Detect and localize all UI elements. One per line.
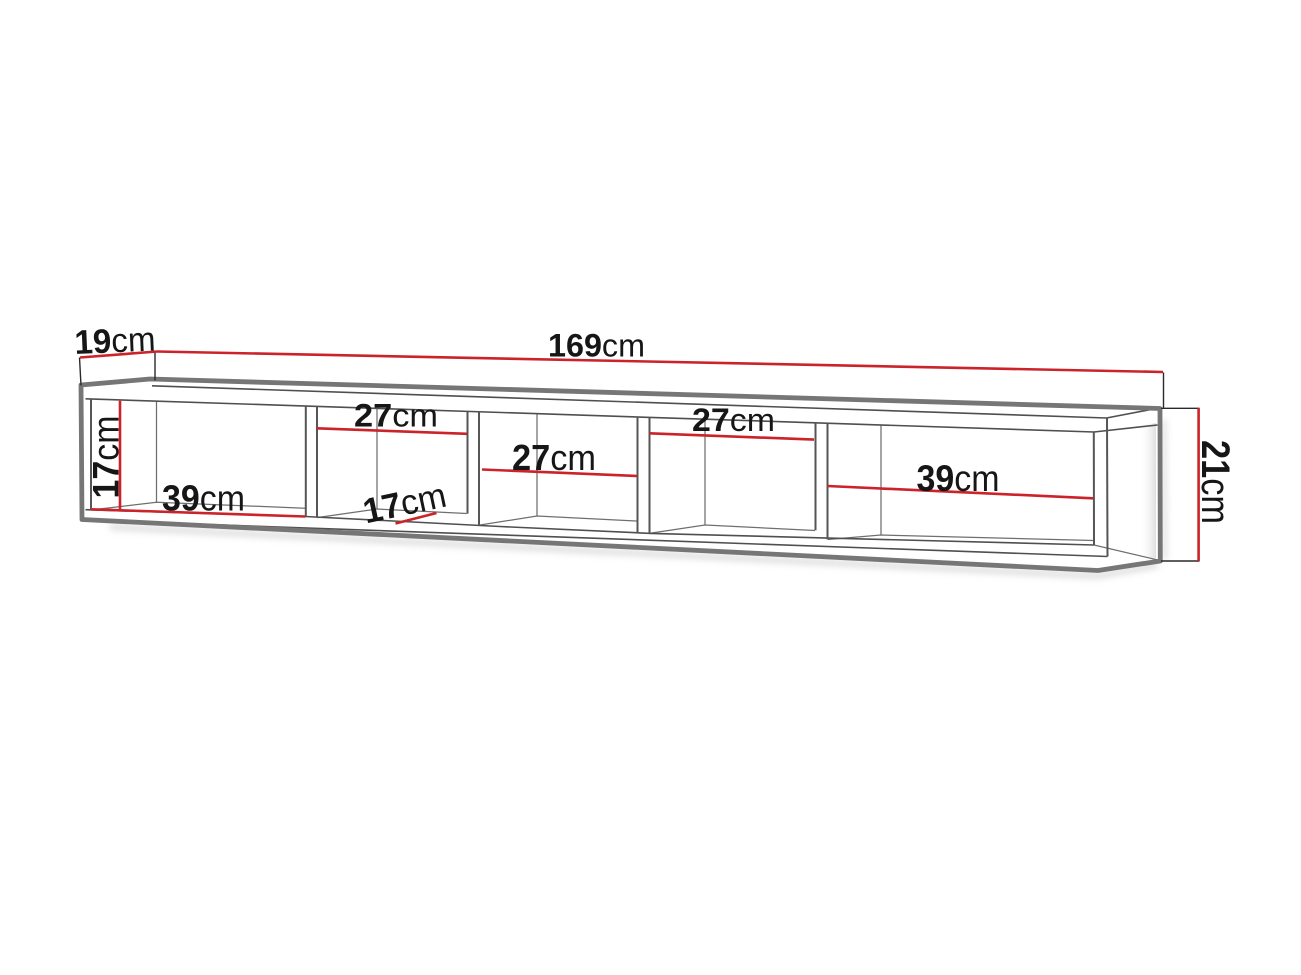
- svg-text:19cm: 19cm: [74, 320, 157, 361]
- svg-text:17cm: 17cm: [86, 416, 127, 499]
- svg-text:39cm: 39cm: [162, 478, 245, 519]
- svg-text:169cm: 169cm: [548, 328, 645, 364]
- svg-text:27cm: 27cm: [354, 397, 438, 433]
- svg-text:39cm: 39cm: [917, 458, 1000, 499]
- svg-text:21cm: 21cm: [1193, 440, 1237, 524]
- svg-text:27cm: 27cm: [512, 437, 596, 478]
- svg-text:27cm: 27cm: [692, 402, 775, 438]
